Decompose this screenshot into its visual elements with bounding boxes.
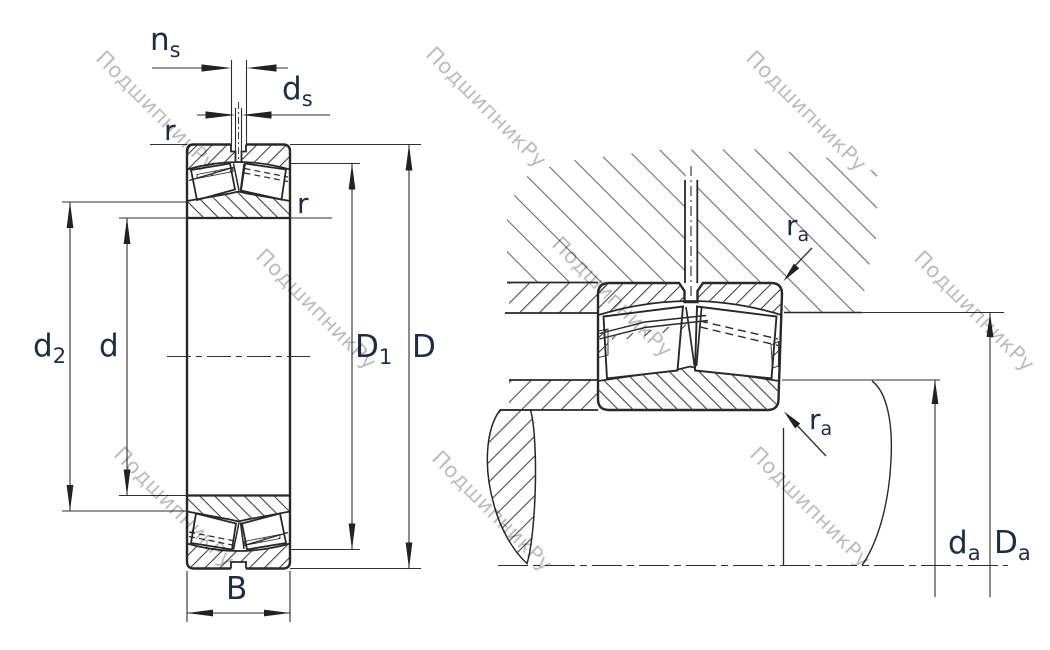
label-D: D	[412, 332, 436, 363]
technical-drawing	[0, 0, 1050, 650]
label-D1: D1	[355, 332, 392, 363]
label-d: d	[99, 331, 119, 362]
label-B: B	[226, 574, 247, 605]
label-r-inner: r	[297, 190, 309, 218]
label-r-outer: r	[164, 117, 176, 145]
abutment-rings	[505, 283, 598, 410]
label-d2: d2	[33, 331, 66, 362]
label-ra-bottom: ra	[809, 406, 832, 434]
right-mounting-figure	[487, 149, 1008, 597]
label-ra-top: ra	[786, 212, 809, 240]
label-Da: Da	[994, 528, 1031, 559]
drawing-page: ns ds r r d2 d D1 D B ra ra da Da Подшип…	[0, 0, 1050, 650]
label-ns: ns	[150, 25, 181, 56]
mounted-bearing-section	[598, 283, 782, 410]
label-ds: ds	[282, 74, 313, 105]
label-da: da	[948, 528, 981, 559]
